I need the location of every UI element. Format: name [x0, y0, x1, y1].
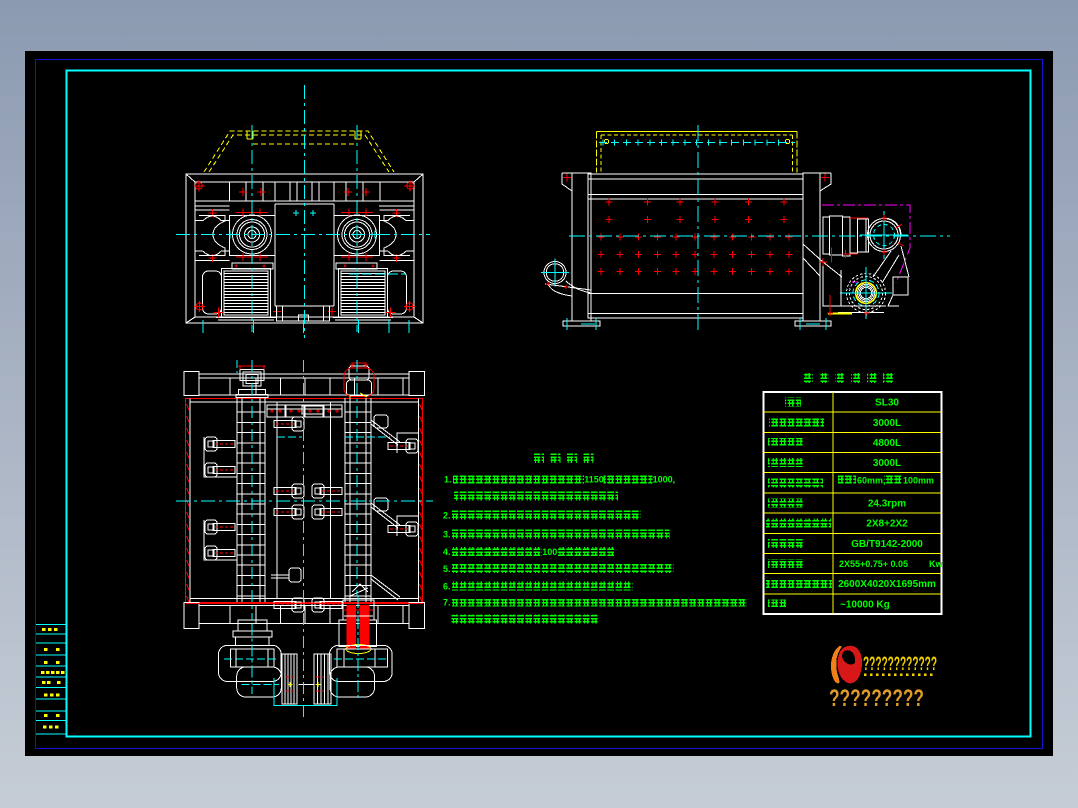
svg-text:4.: 4.	[443, 547, 451, 557]
svg-text:3.: 3.	[443, 530, 451, 540]
svg-text:2600X4020X1695mm: 2600X4020X1695mm	[838, 579, 936, 590]
svg-text:6.: 6.	[443, 582, 451, 592]
svg-text:4800L: 4800L	[873, 438, 901, 449]
svg-text:GB/T9142-2000: GB/T9142-2000	[851, 539, 923, 550]
svg-text:100mm: 100mm	[903, 475, 934, 485]
svg-text:3000L: 3000L	[873, 458, 901, 469]
svg-text:60mm,: 60mm,	[857, 475, 886, 485]
svg-text:3000L: 3000L	[873, 418, 901, 429]
svg-text:7.: 7.	[443, 598, 451, 608]
svg-text:2X8+2X2: 2X8+2X2	[866, 519, 908, 530]
svg-text:SL30: SL30	[875, 398, 899, 409]
svg-text:1.: 1.	[444, 475, 452, 485]
svg-text:Kw: Kw	[929, 559, 943, 569]
svg-text:1150: 1150	[584, 475, 604, 485]
svg-text:?????????: ?????????	[829, 685, 924, 712]
svg-text:24.3rpm: 24.3rpm	[868, 499, 906, 510]
svg-text:1000,: 1000,	[653, 475, 676, 485]
svg-text:????????????: ????????????	[863, 654, 937, 675]
svg-text:5.: 5.	[443, 564, 451, 574]
svg-text:100: 100	[542, 547, 557, 557]
svg-text:2X55+0.75+ 0.05: 2X55+0.75+ 0.05	[839, 559, 908, 569]
svg-text:2.: 2.	[443, 511, 451, 521]
svg-text:~10000 Kg: ~10000 Kg	[840, 599, 890, 610]
